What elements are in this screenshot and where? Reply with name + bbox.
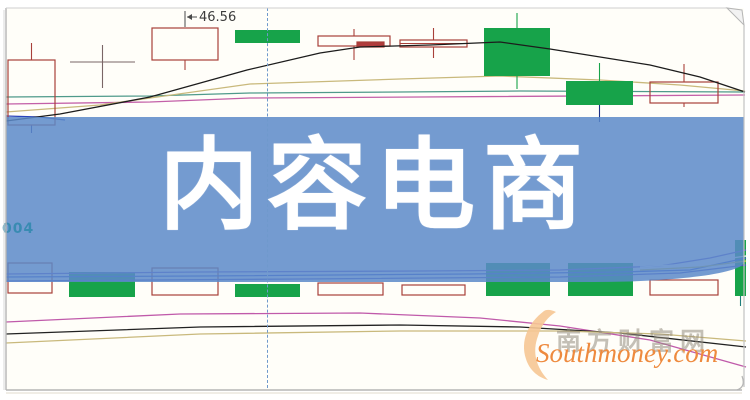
green-candle bbox=[566, 81, 633, 105]
green-candle bbox=[484, 28, 550, 76]
banner-title: 内容电商 bbox=[0, 136, 750, 236]
watermark-site-url: Southmoney.com bbox=[536, 338, 718, 369]
watermark: 南方财富网 Southmoney.com bbox=[510, 305, 745, 385]
price-callout-label: 46.56 bbox=[199, 10, 236, 25]
stock-chart-screenshot: 46.56 004 内容电商 南方财富网 Southmoney.com bbox=[0, 0, 750, 400]
